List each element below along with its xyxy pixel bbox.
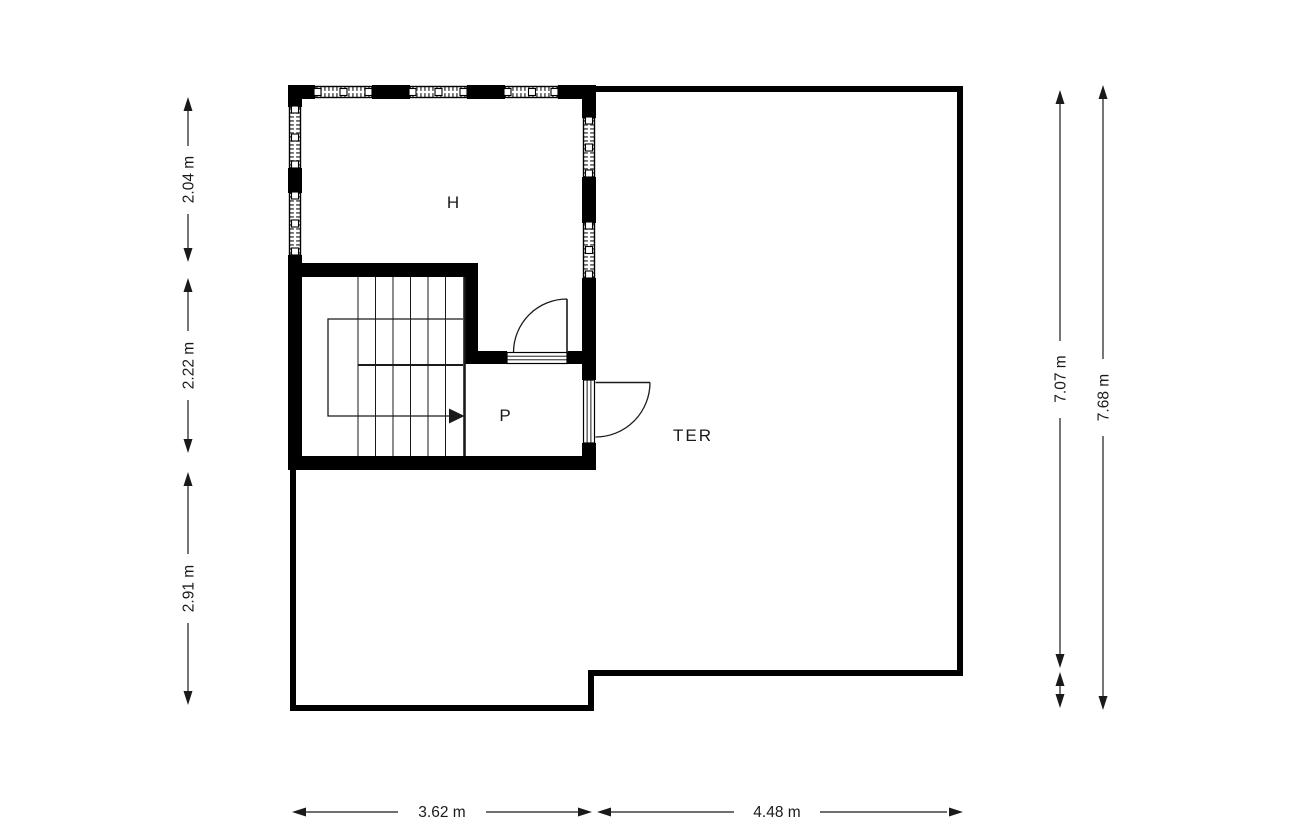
dimension-left-bottom: 2.91 m [181,472,198,705]
door-p-ter [584,380,651,443]
room-label-ter: TER [673,426,713,445]
dimension-bottom-left: 3.62 m [292,804,592,821]
door-h-p [507,299,567,364]
dimension-right-inner: 7.07 m [1053,90,1070,668]
wall-segment [582,177,596,223]
dimension-right-outer: 7.68 m [1096,85,1113,710]
window [409,87,467,98]
walls-thick [288,85,596,470]
wall-segment [588,670,594,711]
windows [290,87,595,279]
dimension-label: 2.91 m [181,565,198,612]
window [290,192,301,255]
stair-direction-arrow [449,409,465,424]
wall-segment [288,85,302,107]
dimension-label: 7.07 m [1053,355,1070,402]
walls-thin-terrace [290,86,963,711]
dimension-label: 4.48 m [753,804,800,821]
wall-segment [582,278,596,380]
dimension-left-middle: 2.22 m [181,278,198,453]
wall-segment [464,263,478,364]
dimension-bottom-right: 4.48 m [597,804,963,821]
wall-segment [288,456,596,470]
wall-segment [293,705,594,711]
window [290,106,301,168]
dimension-label: 7.68 m [1096,374,1113,421]
floor-plan: H P TER 2.04 m 2.22 m 2.91 m [0,0,1290,840]
wall-segment [288,263,478,277]
window [314,87,372,98]
dimension-right-notch [1056,672,1065,708]
window [584,222,595,278]
wall-segment [567,351,582,364]
room-label-h: H [447,193,459,212]
dimension-label: 2.22 m [181,342,198,389]
floorplan-canvas: H P TER 2.04 m 2.22 m 2.91 m [0,0,1290,840]
wall-segment [464,351,507,364]
staircase [328,277,465,456]
wall-segment [290,470,296,711]
wall-segment [582,85,596,118]
wall-segment [592,670,963,676]
wall-segment [372,85,410,99]
wall-segment [288,168,302,193]
wall-segment [467,85,505,99]
doors [507,299,650,443]
wall-segment [596,86,963,92]
window [504,87,558,98]
wall-segment [288,263,302,470]
room-labels: H P TER [447,193,713,445]
dimension-label: 3.62 m [418,804,465,821]
dimension-left-top: 2.04 m [181,97,198,262]
dimension-label: 2.04 m [181,156,198,203]
room-label-p: P [499,406,510,425]
window [584,117,595,177]
stair-walk-line [328,319,463,416]
wall-segment [957,86,963,676]
